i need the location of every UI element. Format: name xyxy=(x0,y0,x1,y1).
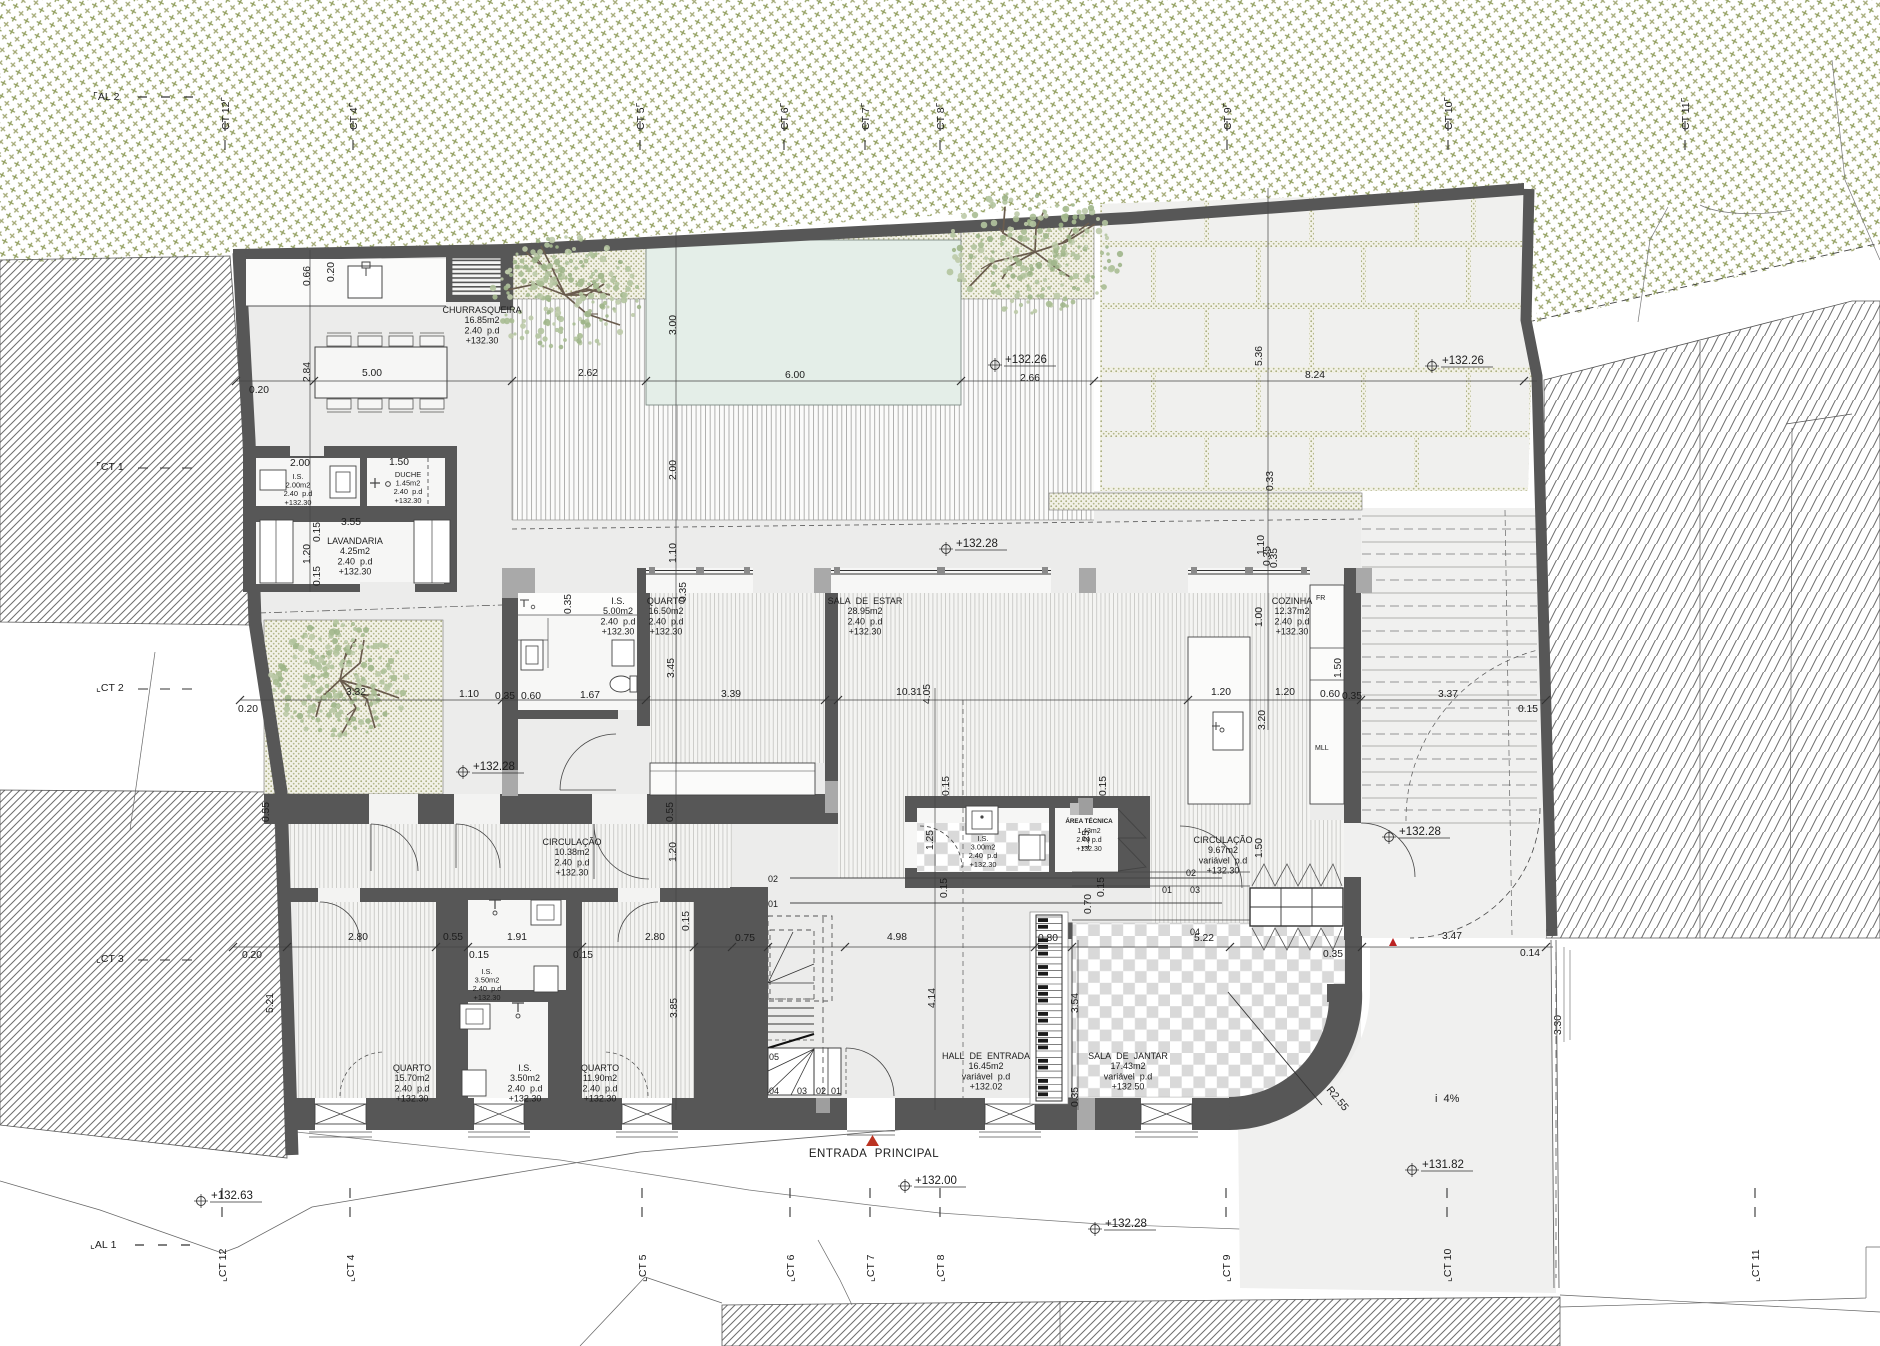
svg-text:⌞CT 11: ⌞CT 11 xyxy=(1750,1249,1762,1282)
svg-text:2.80: 2.80 xyxy=(645,932,665,943)
svg-text:2.84: 2.84 xyxy=(302,362,313,382)
svg-text:+132.63: +132.63 xyxy=(211,1190,253,1202)
svg-text:⌞CT 7: ⌞CT 7 xyxy=(865,1254,877,1282)
svg-text:variável p.d: variável p.d xyxy=(962,1071,1011,1081)
svg-text:⌞CT 6: ⌞CT 6 xyxy=(785,1254,797,1282)
svg-text:4.98: 4.98 xyxy=(887,932,907,943)
svg-text:⌞AL 1: ⌞AL 1 xyxy=(90,1239,117,1251)
svg-text:01: 01 xyxy=(1162,885,1172,895)
svg-text:02: 02 xyxy=(1186,868,1196,878)
svg-text:3.37: 3.37 xyxy=(1438,689,1458,700)
svg-text:+132.28: +132.28 xyxy=(1105,1218,1147,1230)
svg-text:5.00: 5.00 xyxy=(362,368,382,379)
svg-text:CHURRASQUEIRA: CHURRASQUEIRA xyxy=(442,305,521,315)
svg-text:MLL: MLL xyxy=(1315,745,1329,752)
svg-text:+131.82: +131.82 xyxy=(1422,1159,1464,1171)
svg-text:2.40 p.d: 2.40 p.d xyxy=(554,857,589,867)
svg-text:+132.28: +132.28 xyxy=(1399,826,1441,838)
svg-text:2.40 p.d: 2.40 p.d xyxy=(464,325,499,335)
svg-text:4.05: 4.05 xyxy=(922,684,933,704)
svg-text:+132.30: +132.30 xyxy=(1207,866,1240,876)
svg-text:1.20: 1.20 xyxy=(302,544,313,564)
svg-text:15.70m2: 15.70m2 xyxy=(394,1073,429,1083)
svg-text:1.10: 1.10 xyxy=(668,543,679,563)
svg-text:COZINHA: COZINHA xyxy=(1272,596,1313,606)
svg-text:0.55: 0.55 xyxy=(443,932,463,943)
svg-text:2.40 p.d: 2.40 p.d xyxy=(582,1083,617,1093)
svg-text:+132.28: +132.28 xyxy=(473,761,515,773)
svg-text:1.50: 1.50 xyxy=(389,457,409,468)
svg-text:0.70: 0.70 xyxy=(1083,894,1094,914)
svg-text:2.40 p.d: 2.40 p.d xyxy=(337,556,372,566)
svg-text:+132.00: +132.00 xyxy=(915,1175,957,1187)
svg-text:0.15: 0.15 xyxy=(1518,704,1538,715)
svg-text:4.25m2: 4.25m2 xyxy=(340,546,370,556)
svg-text:+132.30: +132.30 xyxy=(466,336,499,346)
svg-text:1.25: 1.25 xyxy=(925,830,936,850)
svg-text:16.50m2: 16.50m2 xyxy=(648,606,683,616)
svg-text:0.15: 0.15 xyxy=(312,566,323,586)
svg-text:5.00m2: 5.00m2 xyxy=(603,606,633,616)
svg-text:0.35: 0.35 xyxy=(495,691,515,702)
svg-text:0.20: 0.20 xyxy=(249,385,269,396)
svg-text:+132.30: +132.30 xyxy=(339,567,372,577)
svg-text:2.00: 2.00 xyxy=(290,458,310,469)
svg-text:5.36: 5.36 xyxy=(1254,346,1265,366)
svg-text:⌞CT 8: ⌞CT 8 xyxy=(935,1254,947,1282)
svg-text:+132.30: +132.30 xyxy=(584,1094,617,1104)
svg-text:variável p.d: variável p.d xyxy=(1199,855,1248,865)
svg-text:03: 03 xyxy=(797,1086,807,1096)
svg-text:3.30: 3.30 xyxy=(1553,1015,1564,1035)
svg-text:3.32: 3.32 xyxy=(346,687,366,698)
svg-text:2.40 p.d: 2.40 p.d xyxy=(648,616,683,626)
svg-text:3.47: 3.47 xyxy=(1442,931,1462,942)
svg-text:0.15: 0.15 xyxy=(312,522,323,542)
svg-text:0.15: 0.15 xyxy=(681,911,692,931)
svg-text:3.85: 3.85 xyxy=(669,998,680,1018)
svg-text:1.67: 1.67 xyxy=(580,690,600,701)
svg-text:+132.30: +132.30 xyxy=(285,498,312,507)
svg-text:+132.30: +132.30 xyxy=(1076,846,1102,853)
svg-text:1.20: 1.20 xyxy=(1275,687,1295,698)
svg-text:QUARTO: QUARTO xyxy=(393,1063,431,1073)
svg-text:i 4%: i 4% xyxy=(1435,1093,1460,1105)
svg-text:0.15: 0.15 xyxy=(1098,776,1109,796)
svg-text:1.10: 1.10 xyxy=(459,689,479,700)
svg-text:2.62: 2.62 xyxy=(578,368,598,379)
svg-text:+132.30: +132.30 xyxy=(1276,627,1309,637)
svg-text:+132.30: +132.30 xyxy=(395,496,422,505)
svg-text:CT 9⌜: CT 9⌜ xyxy=(1222,102,1234,130)
svg-text:+132.26: +132.26 xyxy=(1442,355,1484,367)
svg-text:CT 11⌜: CT 11⌜ xyxy=(1680,97,1692,130)
svg-text:CT 10⌜: CT 10⌜ xyxy=(1443,97,1455,130)
svg-text:QUARTO: QUARTO xyxy=(647,596,685,606)
svg-text:5.22: 5.22 xyxy=(1194,933,1214,944)
svg-text:0.35: 0.35 xyxy=(1070,1087,1081,1107)
svg-text:⌜CT 1: ⌜CT 1 xyxy=(96,461,124,473)
svg-text:12.37m2: 12.37m2 xyxy=(1274,606,1309,616)
svg-text:11.90m2: 11.90m2 xyxy=(583,1073,617,1083)
svg-text:5.21: 5.21 xyxy=(265,993,276,1013)
svg-text:+132.30: +132.30 xyxy=(650,627,683,637)
svg-text:3.54: 3.54 xyxy=(1070,993,1081,1013)
svg-text:0.15: 0.15 xyxy=(469,950,489,961)
svg-text:0.55: 0.55 xyxy=(665,802,676,822)
svg-text:28.95m2: 28.95m2 xyxy=(847,606,882,616)
svg-text:⌞CT 4: ⌞CT 4 xyxy=(345,1254,357,1282)
svg-text:3.20: 3.20 xyxy=(1257,710,1268,730)
svg-text:⌞CT 5: ⌞CT 5 xyxy=(637,1254,649,1282)
svg-text:0.15: 0.15 xyxy=(941,776,952,796)
svg-text:05: 05 xyxy=(769,1052,779,1062)
svg-text:ENTRADA PRINCIPAL: ENTRADA PRINCIPAL xyxy=(809,1148,939,1160)
svg-text:01: 01 xyxy=(831,1086,841,1096)
svg-text:2.40 p.d: 2.40 p.d xyxy=(507,1083,542,1093)
svg-text:2.00: 2.00 xyxy=(668,460,679,480)
svg-text:CIRCULAÇÃO: CIRCULAÇÃO xyxy=(1193,835,1252,845)
svg-text:1.50: 1.50 xyxy=(1333,658,1344,678)
svg-text:CT 6⌜: CT 6⌜ xyxy=(779,102,791,130)
svg-text:+132.30: +132.30 xyxy=(556,868,589,878)
svg-text:9.67m2: 9.67m2 xyxy=(1208,845,1238,855)
svg-text:16.85m2: 16.85m2 xyxy=(464,315,499,325)
svg-text:3.50m2: 3.50m2 xyxy=(510,1073,540,1083)
svg-text:2.80: 2.80 xyxy=(348,932,368,943)
svg-text:0.55: 0.55 xyxy=(261,802,272,822)
svg-text:+132.30: +132.30 xyxy=(849,627,882,637)
svg-text:0.14: 0.14 xyxy=(1520,948,1540,959)
svg-text:16.45m2: 16.45m2 xyxy=(968,1061,1003,1071)
svg-text:0.60: 0.60 xyxy=(1320,689,1340,700)
svg-text:03: 03 xyxy=(1190,885,1200,895)
svg-text:FR: FR xyxy=(1316,595,1325,602)
svg-text:0.15: 0.15 xyxy=(573,950,593,961)
svg-text:+132.26: +132.26 xyxy=(1005,354,1047,366)
svg-text:ÁREA TÉCNICA: ÁREA TÉCNICA xyxy=(1065,816,1113,825)
svg-text:1.00: 1.00 xyxy=(1254,607,1265,627)
svg-text:1.43m2: 1.43m2 xyxy=(1077,828,1100,835)
svg-text:+132.30: +132.30 xyxy=(970,860,997,869)
svg-text:CIRCULAÇÃO: CIRCULAÇÃO xyxy=(542,837,601,847)
svg-text:+132.30: +132.30 xyxy=(602,627,635,637)
svg-text:2.40 p.d: 2.40 p.d xyxy=(394,1083,429,1093)
svg-text:0.20: 0.20 xyxy=(326,262,337,282)
svg-text:0.35: 0.35 xyxy=(563,594,574,614)
svg-text:1.20: 1.20 xyxy=(668,842,679,862)
svg-text:2.40 p.d: 2.40 p.d xyxy=(1076,837,1101,844)
svg-text:CT 7⌜: CT 7⌜ xyxy=(860,102,872,130)
svg-text:3.45: 3.45 xyxy=(666,658,677,678)
svg-text:+132.02: +132.02 xyxy=(970,1082,1003,1092)
svg-text:0.33: 0.33 xyxy=(1265,471,1276,491)
svg-text:QUARTO: QUARTO xyxy=(581,1063,619,1073)
svg-text:02: 02 xyxy=(816,1086,826,1096)
svg-text:8.24: 8.24 xyxy=(1305,370,1325,381)
svg-text:HALL DE ENTRADA: HALL DE ENTRADA xyxy=(942,1051,1030,1061)
svg-text:02: 02 xyxy=(768,874,778,884)
svg-text:0.60: 0.60 xyxy=(521,691,541,702)
svg-text:CT 5⌜: CT 5⌜ xyxy=(635,102,647,130)
svg-text:+132.28: +132.28 xyxy=(956,538,998,550)
svg-text:+132.50: +132.50 xyxy=(1112,1082,1145,1092)
svg-text:3.39: 3.39 xyxy=(721,689,741,700)
svg-text:⌜AL 2: ⌜AL 2 xyxy=(93,91,120,103)
svg-text:0.15: 0.15 xyxy=(1096,877,1107,897)
svg-text:1.91: 1.91 xyxy=(507,932,527,943)
svg-text:0.35: 0.35 xyxy=(1342,691,1362,702)
svg-text:SALA DE ESTAR: SALA DE ESTAR xyxy=(828,596,903,606)
svg-text:⌞CT 12: ⌞CT 12 xyxy=(217,1249,229,1282)
svg-text:2.40 p.d: 2.40 p.d xyxy=(847,616,882,626)
svg-text:LAVANDARIA: LAVANDARIA xyxy=(327,536,383,546)
svg-text:2.66: 2.66 xyxy=(1020,373,1040,384)
svg-text:0.15: 0.15 xyxy=(939,878,950,898)
svg-text:0.66: 0.66 xyxy=(302,266,313,286)
svg-text:CT 12⌜: CT 12⌜ xyxy=(220,97,232,130)
svg-text:CT 4⌜: CT 4⌜ xyxy=(348,102,360,130)
svg-text:0.35: 0.35 xyxy=(1323,949,1343,960)
svg-text:17.43m2: 17.43m2 xyxy=(1110,1061,1145,1071)
svg-text:3.55: 3.55 xyxy=(341,517,361,528)
svg-text:0.80: 0.80 xyxy=(1038,933,1058,944)
svg-text:10.38m2: 10.38m2 xyxy=(554,847,589,857)
svg-text:+132.30: +132.30 xyxy=(474,993,501,1002)
svg-text:I.S.: I.S. xyxy=(518,1063,532,1073)
svg-text:0.20: 0.20 xyxy=(238,704,258,715)
svg-text:6.00: 6.00 xyxy=(785,370,805,381)
svg-text:⌞CT 2: ⌞CT 2 xyxy=(96,682,124,694)
svg-text:0.20: 0.20 xyxy=(242,950,262,961)
svg-text:+132.30: +132.30 xyxy=(396,1094,429,1104)
svg-text:+132.30: +132.30 xyxy=(509,1094,542,1104)
svg-text:CT 8⌜: CT 8⌜ xyxy=(935,102,947,130)
svg-text:04: 04 xyxy=(769,1086,779,1096)
svg-text:10.31: 10.31 xyxy=(896,687,922,698)
svg-text:0.75: 0.75 xyxy=(735,933,755,944)
svg-text:1.20: 1.20 xyxy=(1211,687,1231,698)
svg-text:⌞CT 9: ⌞CT 9 xyxy=(1221,1254,1233,1282)
svg-text:1.50: 1.50 xyxy=(1254,838,1265,858)
svg-text:4.14: 4.14 xyxy=(927,988,938,1008)
svg-text:I.S.: I.S. xyxy=(611,596,625,606)
svg-text:⌞CT 10: ⌞CT 10 xyxy=(1442,1249,1454,1282)
svg-text:SALA DE JANTAR: SALA DE JANTAR xyxy=(1088,1051,1168,1061)
svg-text:3.00: 3.00 xyxy=(668,315,679,335)
svg-text:2.40 p.d: 2.40 p.d xyxy=(600,616,635,626)
svg-text:variável p.d: variável p.d xyxy=(1104,1071,1153,1081)
svg-text:0.35: 0.35 xyxy=(1262,546,1273,566)
svg-text:01: 01 xyxy=(768,899,778,909)
svg-text:⌞CT 3: ⌞CT 3 xyxy=(96,953,124,965)
svg-text:2.40 p.d: 2.40 p.d xyxy=(1274,616,1309,626)
